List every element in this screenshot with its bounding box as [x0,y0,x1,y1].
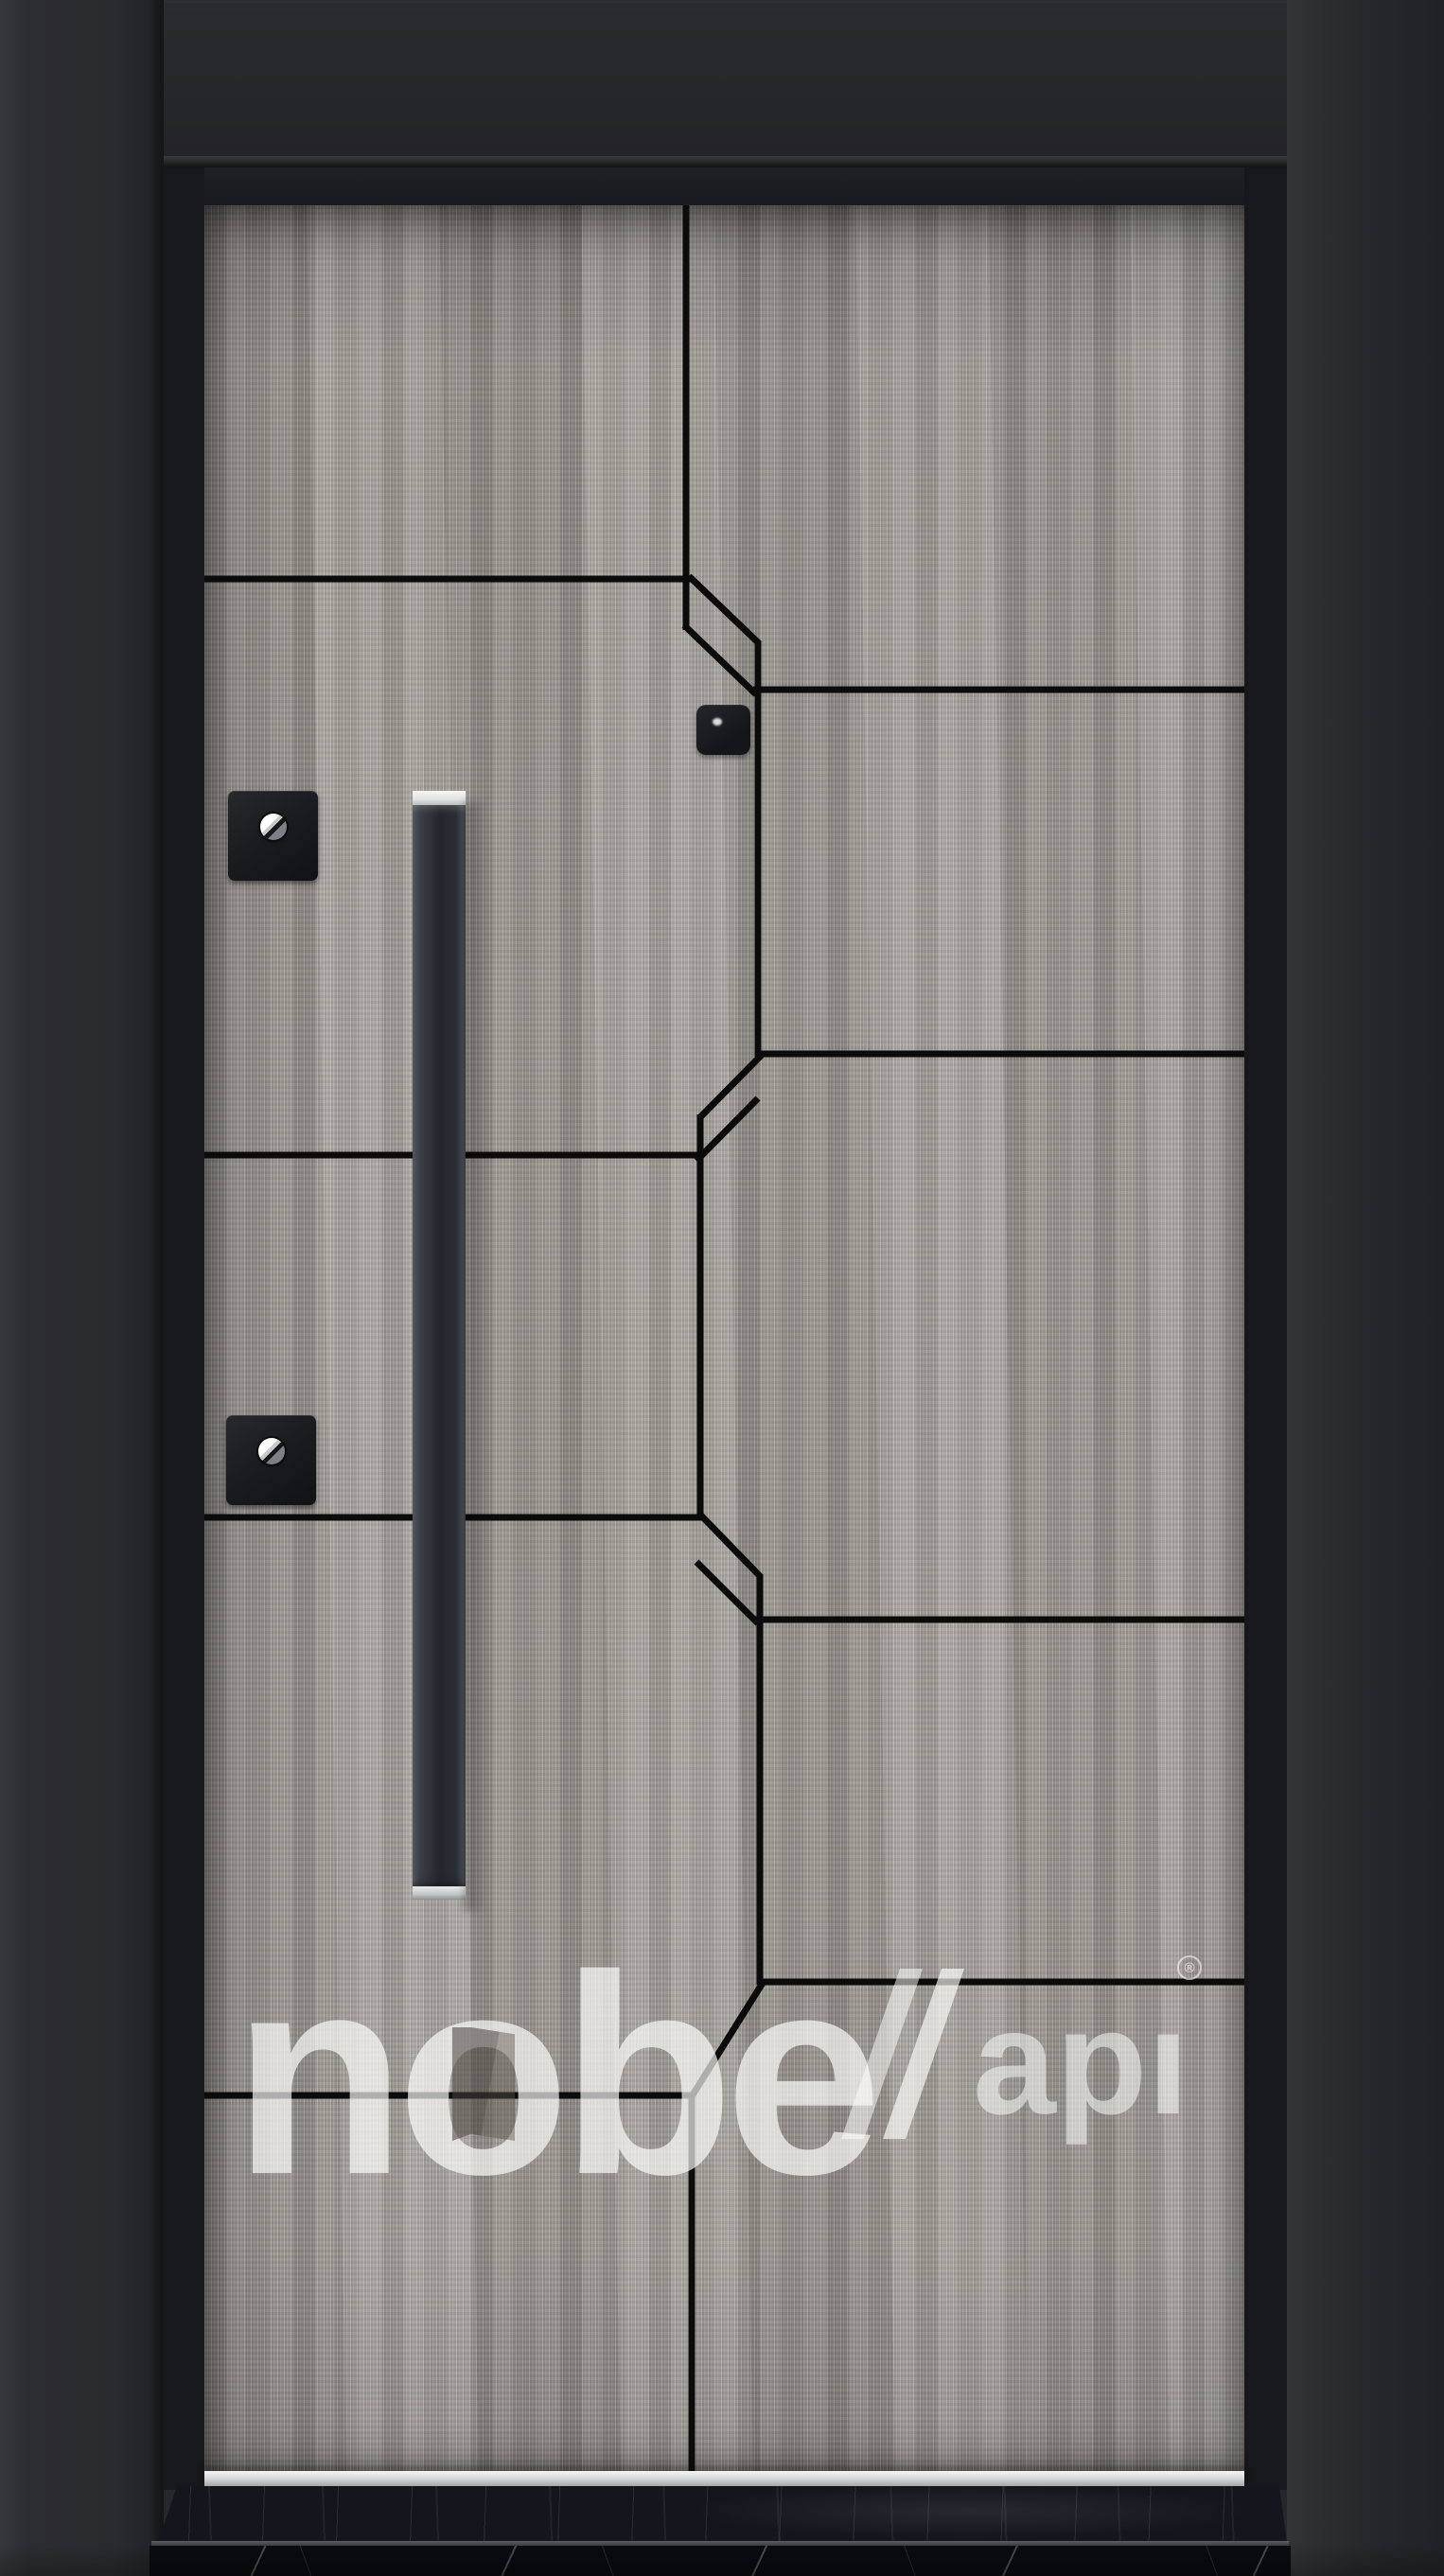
door-product-photo: nobe apı ® [0,0,1444,2576]
frame-header [164,167,1287,205]
upper-thumbturn-escutcheon [228,791,318,881]
brand-slash-k-icon [883,1969,964,2139]
lower-thumbturn-icon [258,1438,285,1464]
marble-threshold-face [150,2546,1291,2576]
frame-jamb-left [164,167,204,2490]
registered-trademark-icon: ® [1177,1955,1202,1980]
transom-sill [164,156,1287,167]
door-icon [452,2027,515,2141]
brand-watermark-nobel: nobe [233,1933,873,2217]
marble-threshold-top [158,2486,1287,2543]
cylinder-viewer [696,705,750,755]
viewer-lens-icon [704,710,744,750]
handle-bottom-cap [413,1886,466,1900]
transom-panel [164,0,1287,159]
brand-watermark-kapi: apı [973,1988,1189,2137]
groove-pattern [0,0,1444,2576]
wall-left [0,0,164,2576]
frame-jamb-right [1244,167,1287,2490]
handle-bar [413,805,466,1887]
brand-slash-l-icon [841,1969,923,2139]
lower-thumbturn-escutcheon [226,1415,316,1505]
kick-plate [204,2471,1244,2486]
wall-right [1287,0,1444,2576]
brand-watermark: nobe apı ® [204,1933,1244,2179]
vertical-pull-handle [413,791,466,1900]
upper-thumbturn-icon [260,814,287,840]
door-leaf: nobe apı ® [204,205,1244,2471]
